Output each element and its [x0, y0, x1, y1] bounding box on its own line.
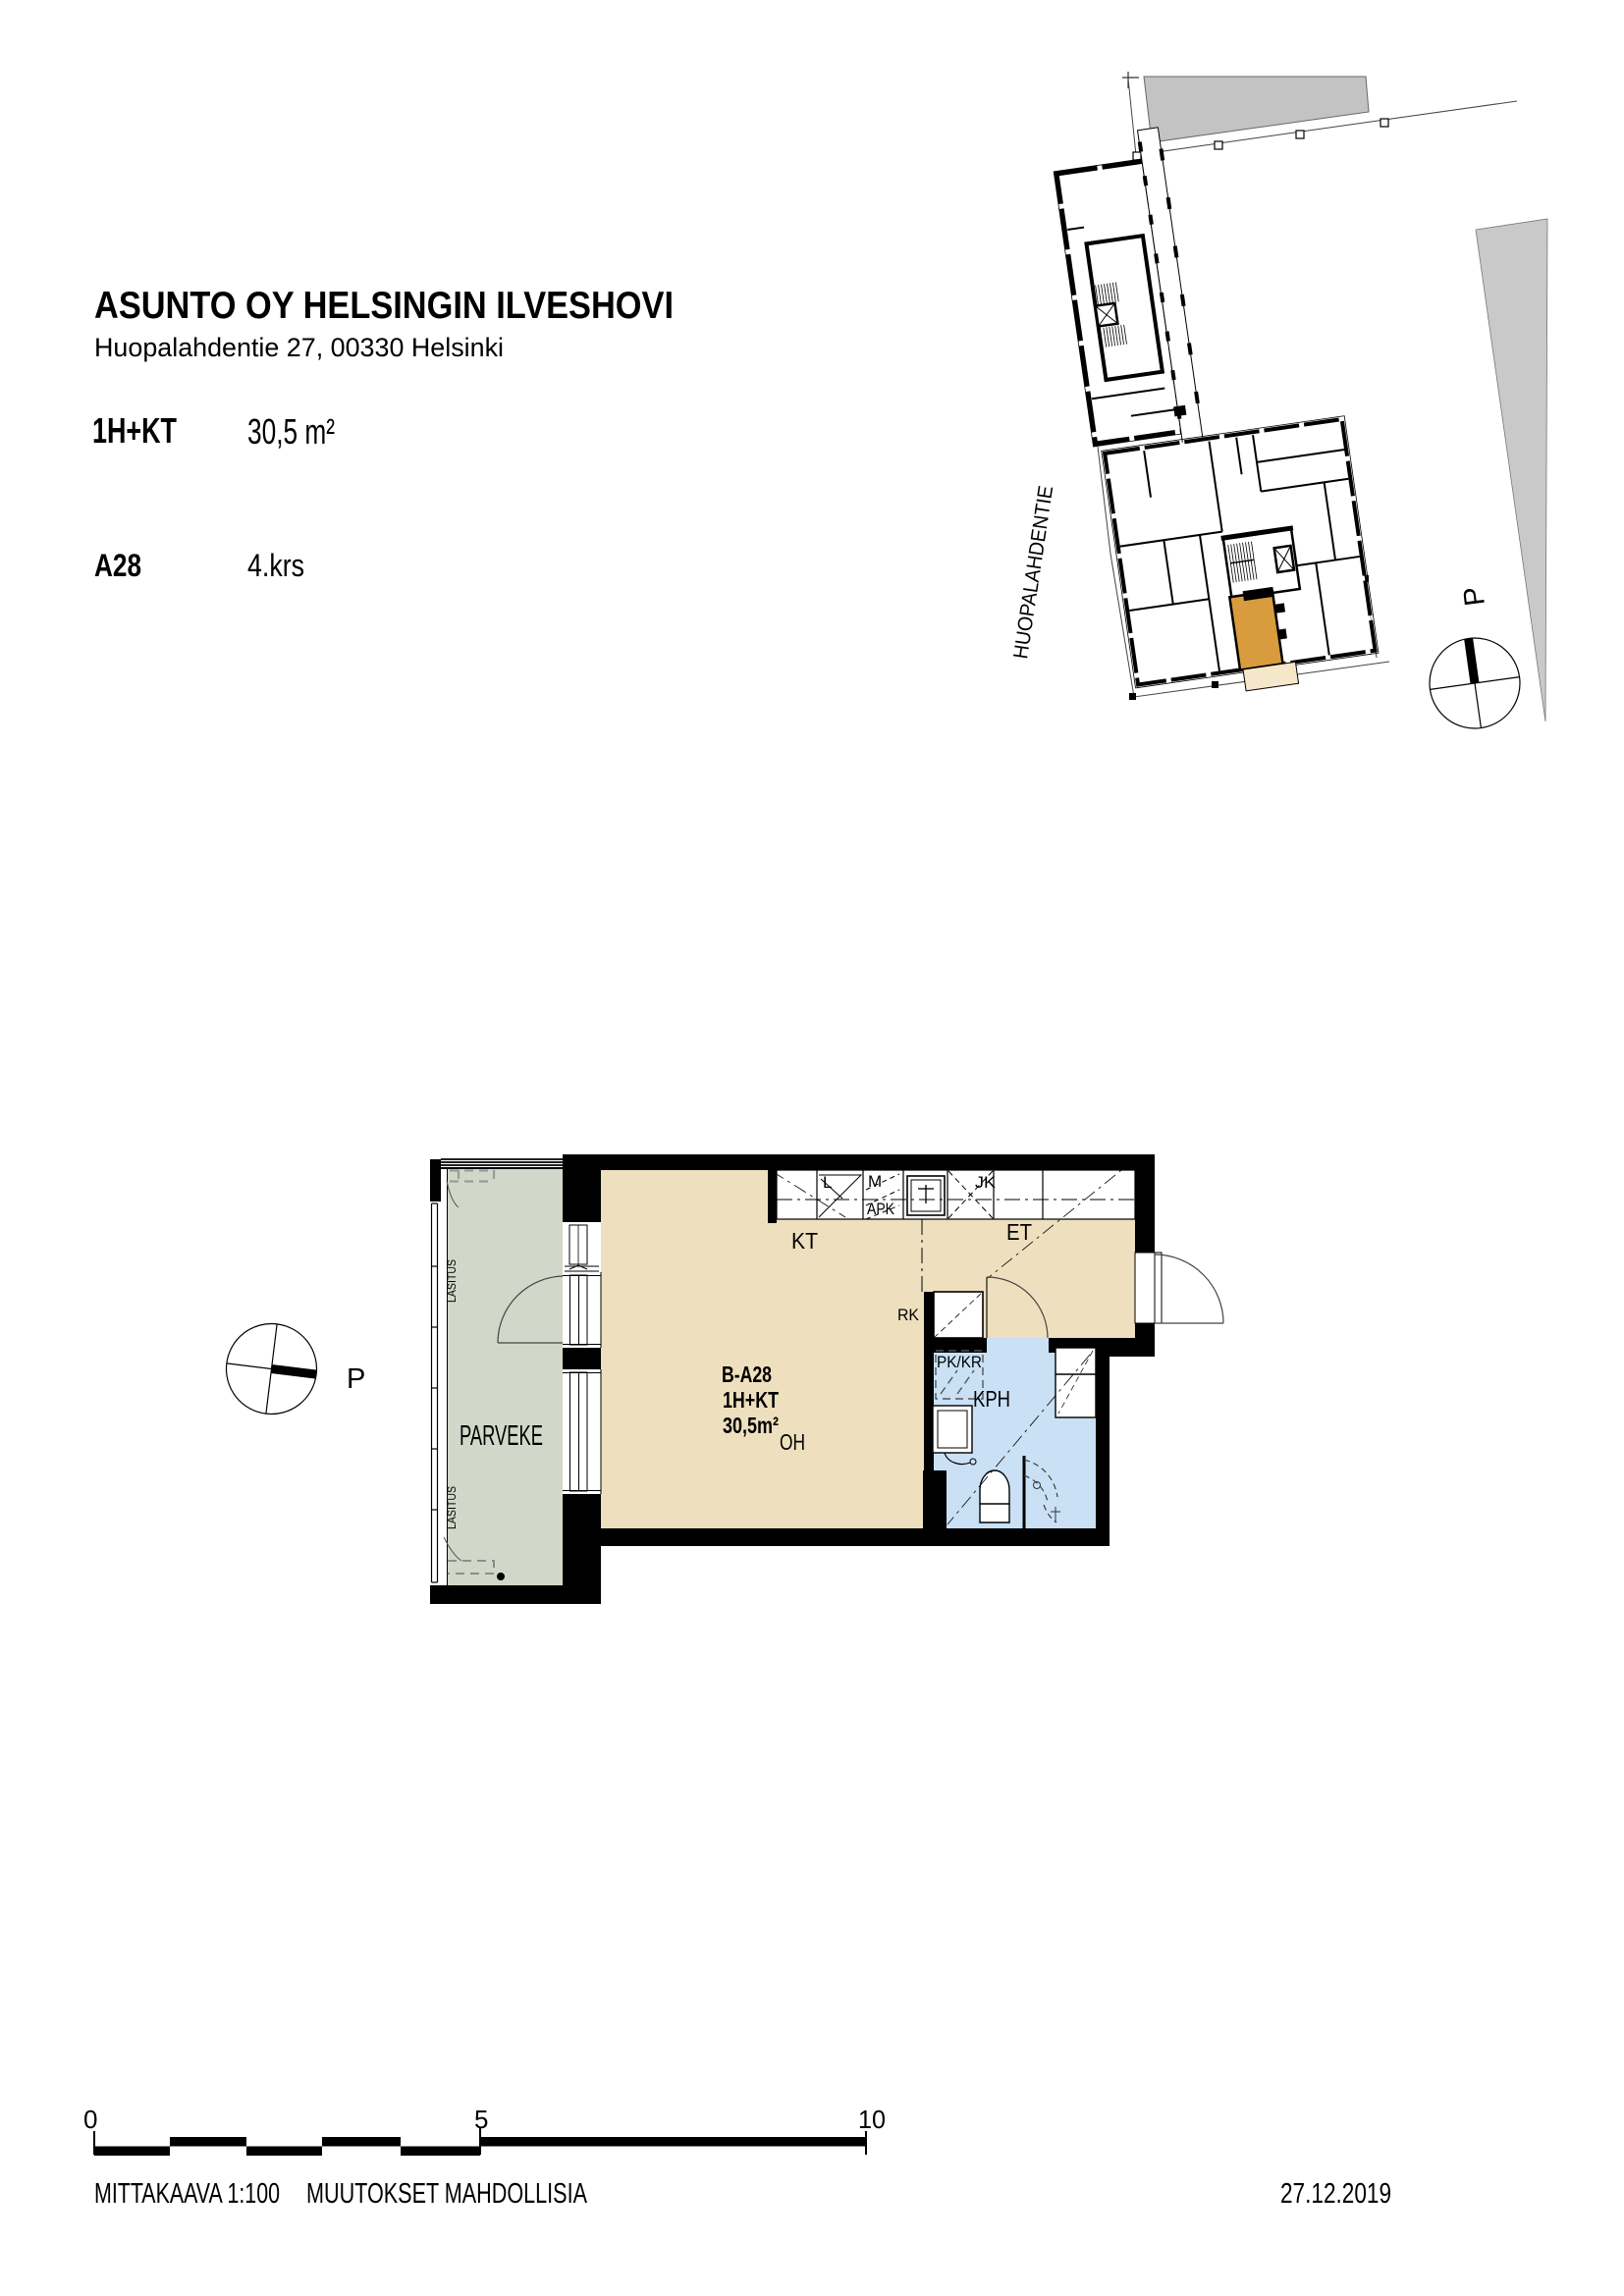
svg-text:0: 0 [83, 2105, 97, 2134]
svg-text:Huopalahdentie 27, 00330 Helsi: Huopalahdentie 27, 00330 Helsinki [94, 333, 504, 362]
svg-text:LASITUS: LASITUS [447, 1486, 459, 1529]
svg-text:1H+KT: 1H+KT [92, 410, 177, 451]
svg-text:MITTAKAAVA 1:100: MITTAKAAVA 1:100 [94, 2178, 280, 2210]
svg-text:27.12.2019: 27.12.2019 [1280, 2178, 1391, 2210]
svg-text:LASITUS: LASITUS [447, 1259, 459, 1303]
svg-text:L: L [823, 1173, 832, 1192]
svg-text:OH: OH [780, 1429, 805, 1455]
svg-text:30,5 m²: 30,5 m² [247, 411, 335, 452]
svg-text:APK: APK [867, 1200, 895, 1218]
svg-text:P: P [347, 1363, 365, 1395]
svg-text:M: M [868, 1172, 882, 1191]
svg-text:ASUNTO OY HELSINGIN ILVESHOVI: ASUNTO OY HELSINGIN ILVESHOVI [94, 285, 674, 327]
svg-text:B-A28: B-A28 [722, 1362, 772, 1387]
svg-text:5: 5 [474, 2105, 488, 2134]
svg-text:P: P [1458, 585, 1491, 608]
svg-text:A28: A28 [94, 548, 141, 583]
svg-text:30,5m²: 30,5m² [723, 1413, 779, 1438]
svg-text:MUUTOKSET MAHDOLLISIA: MUUTOKSET MAHDOLLISIA [306, 2178, 587, 2210]
svg-text:PARVEKE: PARVEKE [460, 1420, 543, 1452]
svg-text:RK: RK [897, 1306, 920, 1324]
svg-text:ET: ET [1006, 1219, 1032, 1245]
svg-text:10: 10 [858, 2105, 886, 2134]
svg-text:KPH: KPH [973, 1386, 1010, 1412]
svg-text:KT: KT [791, 1228, 818, 1254]
svg-text:1H+KT: 1H+KT [723, 1387, 779, 1413]
svg-text:4.krs: 4.krs [247, 548, 304, 583]
svg-text:JK: JK [975, 1173, 997, 1192]
svg-text:PK/KR: PK/KR [937, 1353, 982, 1371]
